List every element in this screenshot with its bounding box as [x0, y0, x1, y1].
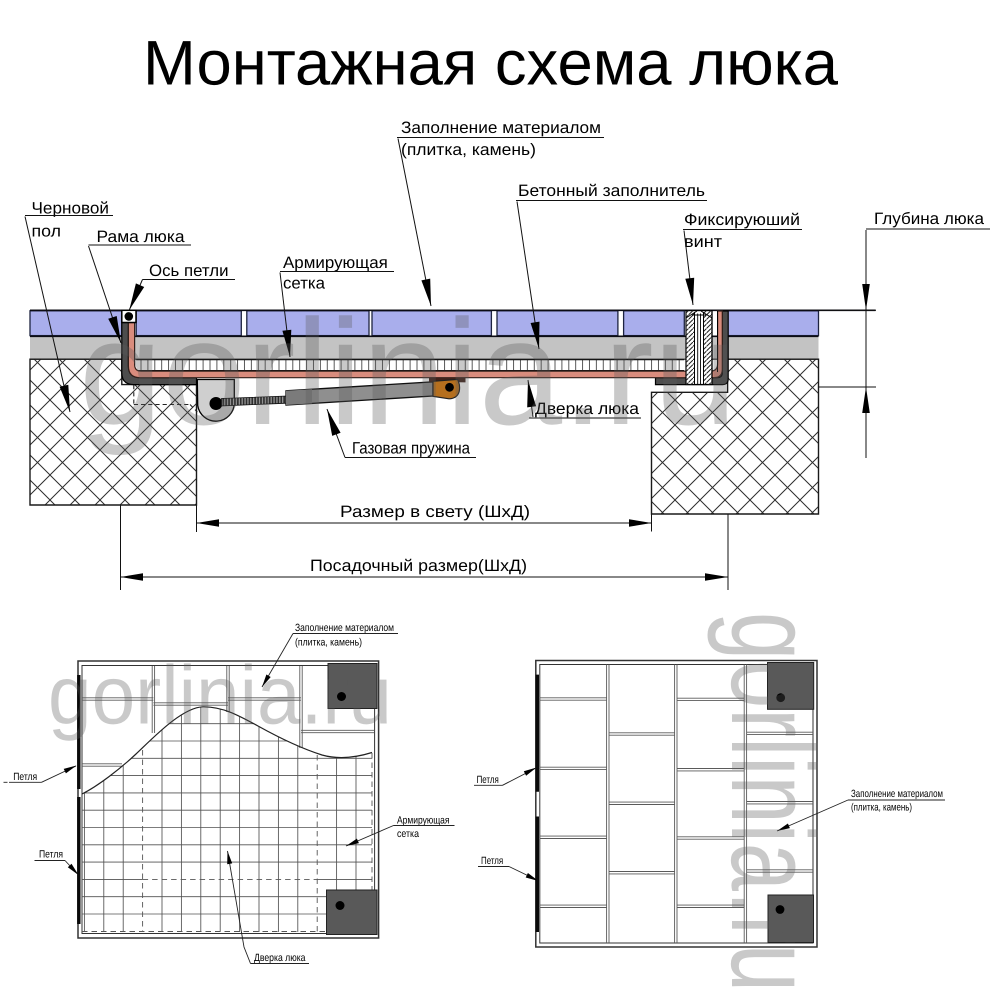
svg-text:Петля: Петля	[477, 774, 499, 786]
svg-text:Заполнение материалом: Заполнение материалом	[295, 622, 394, 634]
svg-text:Заполнение материалом: Заполнение материалом	[851, 788, 943, 800]
svg-text:Глубина люка: Глубина люка	[874, 210, 985, 228]
svg-text:Петля: Петля	[39, 849, 63, 861]
svg-text:винт: винт	[684, 233, 722, 251]
svg-text:Армирующая: Армирующая	[283, 254, 388, 272]
svg-text:Бетонный заполнитель: Бетонный заполнитель	[518, 182, 705, 200]
svg-text:gorlinia.ru: gorlinia.ru	[48, 649, 392, 742]
svg-text:Ось петли: Ось петли	[149, 262, 229, 280]
svg-text:gorlinia.ru: gorlinia.ru	[79, 288, 737, 456]
svg-text:Рама люка: Рама люка	[97, 228, 186, 246]
svg-text:Петля: Петля	[13, 771, 37, 783]
svg-text:gorlinia.ru: gorlinia.ru	[706, 612, 838, 992]
svg-text:(плитка, камень): (плитка, камень)	[851, 802, 912, 814]
svg-text:пол: пол	[32, 223, 62, 241]
svg-text:Заполнение материалом: Заполнение материалом	[401, 119, 601, 137]
svg-text:Монтажная схема люка: Монтажная схема люка	[143, 29, 839, 99]
svg-text:Посадочный размер(ШхД): Посадочный размер(ШхД)	[310, 557, 527, 575]
svg-text:Дверка люка: Дверка люка	[254, 952, 306, 964]
svg-text:Черновой: Черновой	[32, 200, 110, 218]
svg-text:Армирующая: Армирующая	[397, 815, 450, 827]
svg-text:Фиксируюший: Фиксируюший	[684, 211, 800, 229]
svg-text:(плитка, камень): (плитка, камень)	[401, 141, 536, 159]
svg-text:Размер в свету (ШхД): Размер в свету (ШхД)	[340, 503, 530, 521]
svg-text:сетка: сетка	[397, 828, 419, 840]
svg-text:(плитка, камень): (плитка, камень)	[295, 637, 362, 649]
svg-text:Петля: Петля	[481, 855, 503, 867]
